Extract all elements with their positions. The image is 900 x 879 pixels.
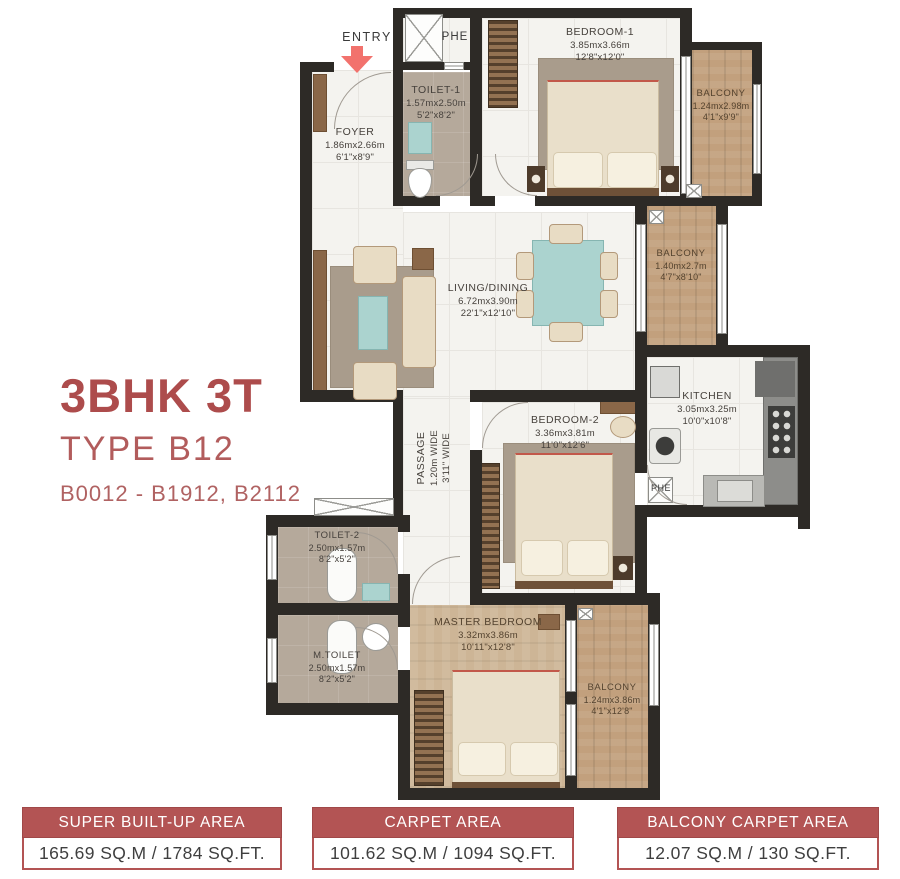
room-label-toilet1: TOILET-1 1.57mx2.50m 5'2"x8'2" xyxy=(398,84,474,123)
room-label-mtoilet: M.TOILET 2.50mx1.57m 8'2"x5'2" xyxy=(280,650,394,686)
bedroom1-headboard xyxy=(547,188,659,196)
title-block: 3BHK 3T TYPE B12 B0012 - B1912, B2112 xyxy=(60,372,301,505)
wall xyxy=(635,505,647,605)
area-box-balcony-carpet: BALCONY CARPET AREA 12.07 SQ.M / 130 SQ.… xyxy=(617,807,879,870)
entry-arrow-head-icon xyxy=(341,56,373,73)
wall xyxy=(470,593,660,605)
deck-hatch xyxy=(314,498,394,516)
wall xyxy=(535,196,762,206)
coffee-table xyxy=(358,296,388,350)
area-box-value: 12.07 SQ.M / 130 SQ.FT. xyxy=(617,838,879,870)
wall xyxy=(482,196,495,206)
room-label-phe-kitchen: PHE xyxy=(646,483,676,493)
master-pillow xyxy=(458,742,506,776)
bedroom2-pillow xyxy=(567,540,609,576)
foyer-console xyxy=(313,74,327,132)
bedroom2-nightstand xyxy=(613,556,633,580)
dining-chair xyxy=(600,252,618,280)
room-label-master-bedroom: MASTER BEDROOM 3.32mx3.86m 10'11"x12'8" xyxy=(408,616,568,655)
bedroom2-pillow xyxy=(521,540,563,576)
side-table xyxy=(412,248,434,270)
room-label-bedroom1: BEDROOM-1 3.85mx3.66m 12'8"x12'0" xyxy=(530,26,670,65)
duct-hatch xyxy=(686,184,702,198)
dining-chair xyxy=(600,290,618,318)
room-label-kitchen: KITCHEN 3.05mx3.25m 10'0"x10'8" xyxy=(652,390,762,429)
bedroom2-headboard xyxy=(515,581,613,589)
floor-plan-page: ENTRY xyxy=(0,0,900,879)
wall xyxy=(470,450,482,593)
room-label-toilet2: TOILET-2 2.50mx1.57m 8'2"x5'2" xyxy=(280,530,394,566)
dining-chair xyxy=(516,252,534,280)
area-box-header: BALCONY CARPET AREA xyxy=(617,807,879,838)
room-label-phe-top: PHE xyxy=(436,31,474,43)
room-label-passage: PASSAGE 1.20m WIDE 3'11" WIDE xyxy=(415,411,459,505)
bedroom1-nightstand xyxy=(661,166,679,192)
entry-label: ENTRY xyxy=(327,30,407,44)
wall xyxy=(798,345,810,529)
plan-title: 3BHK 3T xyxy=(60,372,301,419)
window xyxy=(681,56,691,194)
balcony1-floor xyxy=(692,50,752,200)
wall xyxy=(680,8,692,58)
room-label-bedroom2: BEDROOM-2 3.36mx3.81m 11'0"x12'6" xyxy=(495,414,635,453)
wall xyxy=(398,788,660,800)
area-box-header: CARPET AREA xyxy=(312,807,574,838)
duct-hatch xyxy=(578,608,593,620)
stove-icon xyxy=(768,406,795,458)
wall xyxy=(393,390,403,517)
wall xyxy=(266,515,398,527)
wall xyxy=(266,703,398,715)
wall xyxy=(300,62,312,402)
room-label-balcony3: BALCONY 1.24mx3.86m 4'1"x12'8" xyxy=(575,682,649,718)
plan-unit-numbers: B0012 - B1912, B2112 xyxy=(60,483,301,505)
area-box-super-builtup: SUPER BUILT-UP AREA 165.69 SQ.M / 1784 S… xyxy=(22,807,282,870)
master-pillow xyxy=(510,742,558,776)
bedroom1-pillow xyxy=(607,152,657,188)
bedroom1-pillow xyxy=(553,152,603,188)
room-label-balcony1: BALCONY 1.24mx2.98m 4'1"x9'9" xyxy=(688,88,754,124)
wall xyxy=(482,390,647,402)
tv-console xyxy=(313,250,327,398)
armchair xyxy=(353,246,397,284)
area-box-value: 165.69 SQ.M / 1784 SQ.FT. xyxy=(22,838,282,870)
area-box-header: SUPER BUILT-UP AREA xyxy=(22,807,282,838)
wall xyxy=(470,390,482,402)
washing-machine xyxy=(649,428,681,464)
window xyxy=(753,84,761,174)
dining-chair xyxy=(549,322,583,342)
armchair xyxy=(353,362,397,400)
bedroom1-wardrobe xyxy=(488,20,518,108)
area-box-value: 101.62 SQ.M / 1094 SQ.FT. xyxy=(312,838,574,870)
window xyxy=(717,224,727,334)
window xyxy=(649,624,659,706)
wall xyxy=(635,357,647,473)
toilet2-washbasin xyxy=(362,583,390,601)
window xyxy=(267,535,277,580)
master-headboard xyxy=(452,782,560,788)
kitchen-sink xyxy=(717,480,753,502)
wall xyxy=(398,515,410,532)
toilet1-washbasin xyxy=(408,122,432,154)
plan-type: TYPE B12 xyxy=(60,432,301,466)
room-label-living-dining: LIVING/DINING 6.72mx3.90m 22'1"x12'10" xyxy=(428,282,548,321)
wall xyxy=(398,670,410,800)
room-label-foyer: FOYER 1.86mx2.66m 6'1"x8'9" xyxy=(314,126,396,165)
window xyxy=(267,638,277,683)
duct-hatch xyxy=(649,210,664,224)
room-label-balcony2: BALCONY 1.40mx2.7m 4'7"x8'10" xyxy=(644,248,718,284)
dining-chair xyxy=(549,224,583,244)
wall xyxy=(278,603,398,615)
area-box-carpet: CARPET AREA 101.62 SQ.M / 1094 SQ.FT. xyxy=(312,807,574,870)
louver-door xyxy=(444,62,464,70)
master-wardrobe xyxy=(414,690,444,786)
